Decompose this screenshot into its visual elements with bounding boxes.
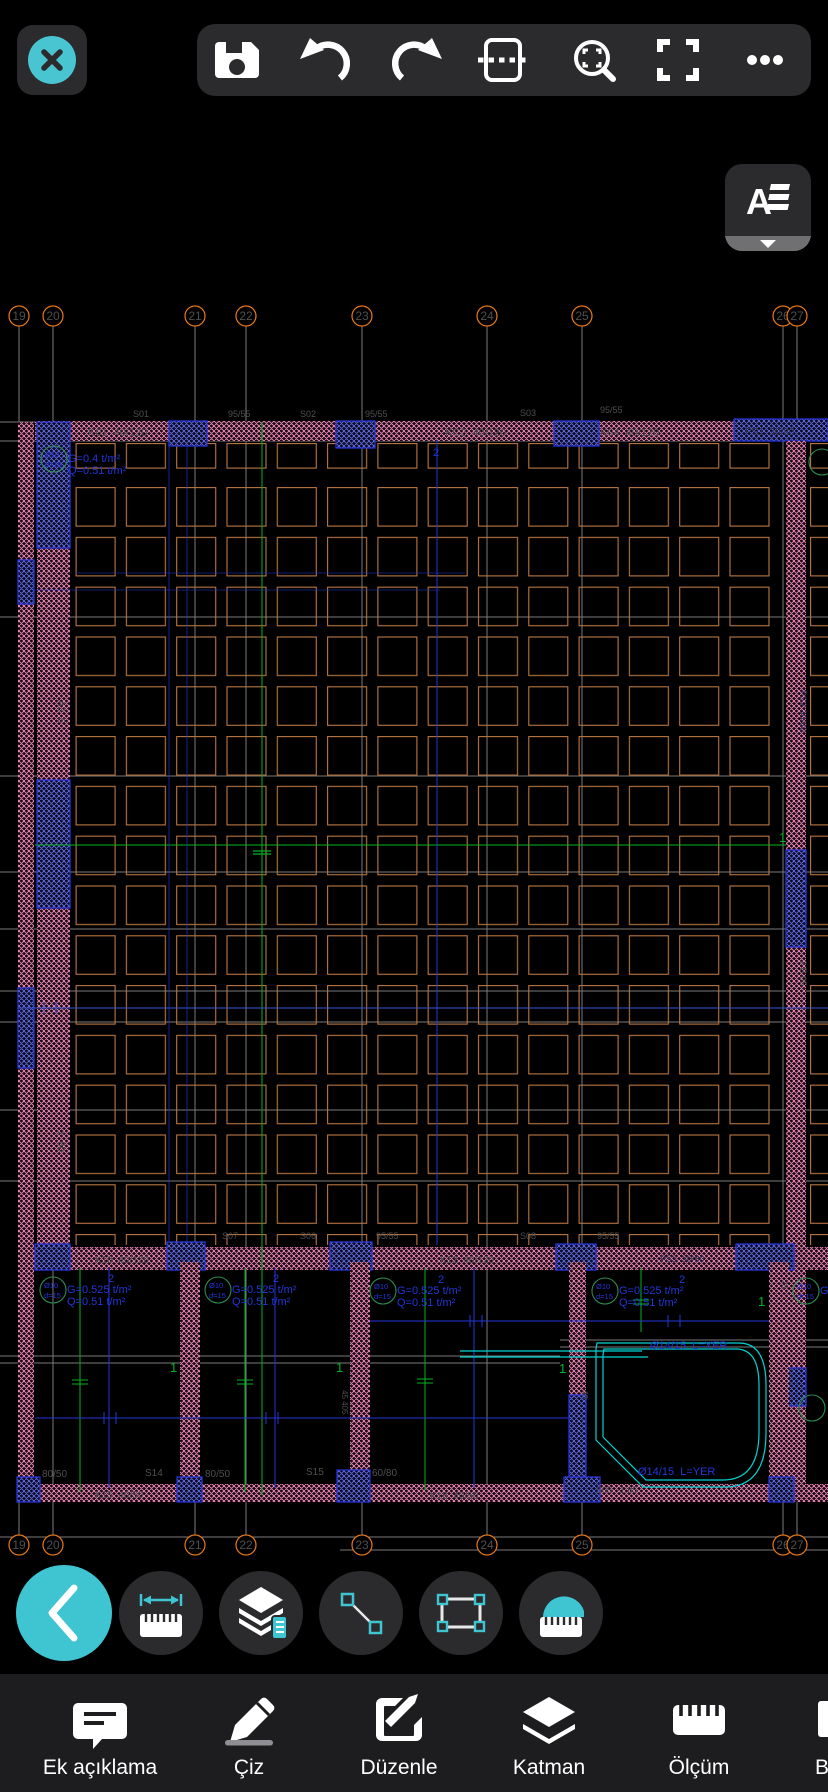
svg-text:27: 27 — [790, 1538, 804, 1552]
svg-text:G=0.525 t/m²: G=0.525 t/m² — [232, 1284, 297, 1296]
svg-text:PS3 30/80: PS3 30/80 — [660, 1254, 705, 1264]
svg-text:Ø10: Ø10 — [374, 1282, 388, 1291]
svg-text:Q=0.51 t/m²: Q=0.51 t/m² — [619, 1297, 678, 1309]
svg-text:Q=0.51 t/m²: Q=0.51 t/m² — [232, 1296, 291, 1308]
svg-text:K12 40/120: K12 40/120 — [440, 1255, 494, 1266]
svg-text:95/55: 95/55 — [600, 405, 623, 415]
svg-text:27: 27 — [790, 309, 804, 323]
svg-text:Ø10: Ø10 — [45, 450, 59, 459]
svg-text:Ø10: Ø10 — [44, 1281, 58, 1290]
svg-text:K15 40/50: K15 40/50 — [95, 1490, 144, 1501]
svg-text:80/50: 80/50 — [205, 1469, 230, 1480]
svg-text:B: B — [815, 1756, 828, 1779]
svg-text:1: 1 — [170, 1360, 177, 1375]
svg-text:S05 -1.85: S05 -1.85 — [596, 1485, 638, 1495]
svg-text:d=15: d=15 — [596, 1292, 613, 1301]
svg-text:Katman: Katman — [513, 1756, 585, 1779]
svg-text:d=15: d=15 — [209, 1291, 226, 1300]
svg-text:S01: S01 — [133, 409, 149, 419]
svg-text:S07: S07 — [222, 1231, 238, 1241]
svg-text:20: 20 — [46, 1538, 60, 1552]
svg-text:KC2 40/120: KC2 40/120 — [445, 427, 506, 439]
svg-text:1: 1 — [779, 830, 786, 845]
svg-text:K04 40/120: K04 40/120 — [600, 427, 659, 439]
svg-text:d=15: d=15 — [45, 460, 62, 469]
svg-text:G=0: G=0 — [820, 1285, 828, 1297]
svg-text:Q=0.51 t/m²: Q=0.51 t/m² — [397, 1297, 456, 1309]
svg-text:22: 22 — [239, 309, 253, 323]
svg-text:S06: S06 — [300, 1231, 316, 1241]
svg-text:1: 1 — [758, 1294, 765, 1309]
svg-text:23: 23 — [355, 309, 369, 323]
svg-text:80/50: 80/50 — [42, 1469, 67, 1480]
svg-text:K16 40/50: K16 40/50 — [430, 1491, 479, 1502]
svg-text:Ø10: Ø10 — [209, 1281, 223, 1290]
svg-text:24: 24 — [480, 1538, 494, 1552]
svg-text:Ø10: Ø10 — [797, 1282, 811, 1291]
svg-text:2: 2 — [273, 1273, 279, 1285]
svg-text:Q=0.51 t/m²: Q=0.51 t/m² — [67, 1296, 126, 1308]
svg-text:Ölçüm: Ölçüm — [669, 1756, 730, 1779]
svg-text:95/55: 95/55 — [228, 409, 251, 419]
svg-text:A: A — [746, 181, 772, 222]
svg-text:95/55: 95/55 — [365, 409, 388, 419]
svg-text:40: 40 — [580, 1390, 589, 1399]
svg-text:21: 21 — [188, 1538, 202, 1552]
svg-text:24: 24 — [480, 309, 494, 323]
svg-text:22: 22 — [239, 1538, 253, 1552]
svg-text:G=0.525 t/m²: G=0.525 t/m² — [67, 1284, 132, 1296]
svg-text:25: 25 — [575, 1538, 589, 1552]
svg-text:Ø14/15 L=YER: Ø14/15 L=YER — [638, 1466, 715, 1478]
svg-text:1: 1 — [336, 1360, 343, 1375]
svg-text:25: 25 — [575, 309, 589, 323]
svg-text:G=0.4 t/m²: G=0.4 t/m² — [68, 453, 121, 465]
svg-text:S15: S15 — [306, 1467, 324, 1478]
svg-text:2: 2 — [108, 1273, 114, 1285]
svg-text:Ø10: Ø10 — [596, 1282, 610, 1291]
svg-text:K10 40/120: K10 40/120 — [95, 1255, 149, 1266]
svg-text:19: 19 — [12, 1538, 26, 1552]
svg-text:19: 19 — [12, 309, 26, 323]
svg-text:G=0.525 t/m²: G=0.525 t/m² — [397, 1285, 462, 1297]
svg-text:95/55: 95/55 — [376, 1231, 399, 1241]
svg-text:A3 5: A3 5 — [55, 700, 66, 724]
svg-text:K01 40/120: K01 40/120 — [88, 427, 147, 439]
svg-text:2: 2 — [433, 447, 439, 459]
svg-text:2 B 05: 2 B 05 — [798, 960, 808, 986]
svg-text:d=15: d=15 — [44, 1291, 61, 1300]
svg-text:S08: S08 — [520, 1231, 536, 1241]
svg-text:S02: S02 — [300, 409, 316, 419]
svg-text:2: 2 — [679, 1274, 685, 1286]
svg-text:23: 23 — [355, 1538, 369, 1552]
svg-text:Düzenle: Düzenle — [360, 1756, 437, 1779]
svg-text:Çiz: Çiz — [234, 1756, 264, 1779]
svg-text:95/55: 95/55 — [597, 1231, 620, 1241]
svg-text:d=15: d=15 — [374, 1292, 391, 1301]
svg-text:1: 1 — [559, 1361, 566, 1376]
svg-text:Ek açıklama: Ek açıklama — [43, 1756, 158, 1779]
svg-text:25: 25 — [780, 1280, 789, 1289]
svg-text:PS2 30/80: PS2 30/80 — [798, 690, 808, 732]
svg-text:S14: S14 — [145, 1468, 163, 1479]
svg-text:d=15: d=15 — [797, 1292, 814, 1301]
svg-text:G=0.525 t/m²: G=0.525 t/m² — [619, 1285, 684, 1297]
svg-text:21: 21 — [188, 309, 202, 323]
svg-text:PS1 30/80: PS1 30/80 — [745, 427, 795, 438]
svg-text:45 405: 45 405 — [340, 1390, 349, 1415]
svg-text:2: 2 — [438, 1274, 444, 1286]
svg-text:20: 20 — [46, 309, 60, 323]
svg-text:1 60: 1 60 — [55, 1130, 66, 1153]
svg-text:Ø14/15 L=YER: Ø14/15 L=YER — [650, 1340, 727, 1352]
svg-text:Q=0.51 t/m²: Q=0.51 t/m² — [68, 465, 127, 477]
svg-text:60/80: 60/80 — [372, 1468, 397, 1479]
svg-text:S03: S03 — [520, 408, 536, 418]
